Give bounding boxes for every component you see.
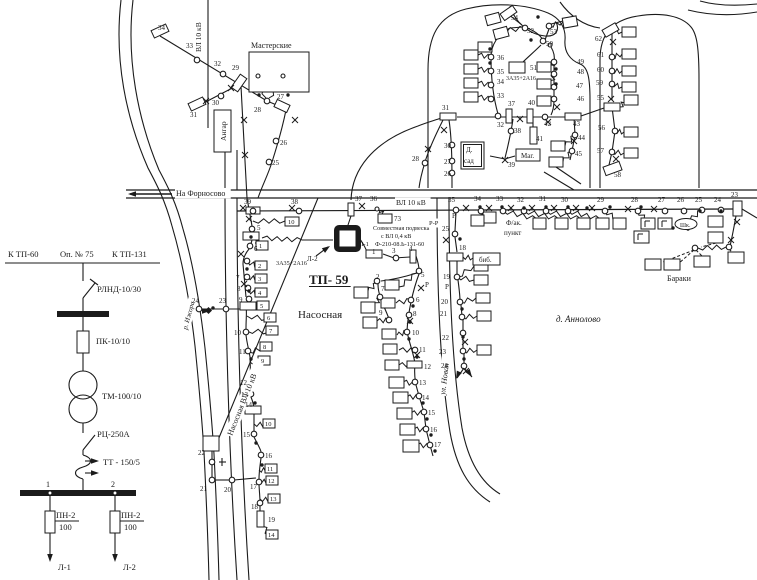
pole-marker [551, 59, 557, 65]
diagram-line [237, 209, 733, 211]
pole-marker [218, 93, 224, 99]
house [664, 259, 680, 270]
diagram-line [241, 86, 247, 198]
diagram-label: 14 [422, 394, 430, 402]
diagram-label: 20 [224, 486, 232, 494]
diagram-line [258, 110, 286, 198]
diagram-label: 10 [412, 329, 420, 337]
pole-marker [264, 98, 270, 104]
diagram-label: 18 [459, 244, 467, 252]
house [622, 66, 636, 76]
house [493, 26, 509, 39]
pole-marker [488, 96, 494, 102]
service-dot [566, 205, 569, 208]
pole-marker [540, 38, 546, 44]
pole-marker [488, 82, 494, 88]
diagram-label: биб. [479, 256, 492, 264]
diagram-label: 34 [158, 24, 166, 32]
house [378, 214, 392, 223]
diagram-label: 50 [546, 40, 554, 48]
diagram-label: с ВЛ 0,4 кВ [381, 233, 411, 240]
diagram-line [688, 10, 757, 15]
house [533, 218, 546, 229]
pole-marker [209, 477, 215, 483]
label-group: Ангар [219, 121, 228, 141]
diagram-label: 1 [46, 480, 50, 489]
diagram-line [259, 458, 261, 479]
diagram-label: 24 [714, 196, 722, 204]
diagram-label: 35 [448, 196, 456, 204]
pole-marker [488, 68, 494, 74]
diagram-label: 3А35+2А16 [276, 260, 307, 267]
diagram-label: 35 [497, 68, 505, 76]
pole-marker [565, 208, 571, 214]
pole-marker [457, 299, 463, 305]
diagram-label: 36 [370, 195, 378, 203]
diagram-label: 28 [631, 196, 639, 204]
diagram-label: 29 [597, 196, 605, 204]
pole-marker [113, 491, 117, 495]
diagram-label: Маг. [521, 152, 534, 160]
pole-marker [256, 479, 262, 485]
house [537, 79, 551, 89]
pole-marker [692, 245, 698, 251]
house [622, 49, 636, 59]
house [476, 293, 490, 303]
diagram-label: 27 [444, 158, 452, 166]
pole-marker [375, 207, 379, 211]
diagram-label: 43 [573, 120, 581, 128]
pole-marker [393, 255, 399, 261]
diagram-label: Р-Р [429, 220, 439, 227]
pole-marker [609, 54, 615, 60]
diagram-label: 26 [444, 170, 452, 178]
service-dot [460, 307, 463, 310]
diagram-label: 16 [265, 452, 273, 460]
diagram-label: 49 [577, 58, 585, 66]
pole-marker [244, 258, 250, 264]
diagram-label: ТТ - 150/5 [103, 457, 140, 467]
house [382, 329, 396, 339]
service-drop-line [253, 219, 285, 223]
house [400, 424, 415, 435]
diagram-label: 2 [111, 480, 115, 489]
diagram-label: 24 [192, 297, 200, 305]
house [708, 216, 723, 227]
diagram-label: Шк. [680, 223, 691, 229]
house [348, 203, 354, 216]
diagram-line [458, 280, 460, 301]
pole-marker [266, 159, 272, 165]
pole-marker [229, 477, 235, 483]
diagram-label: 25 [272, 159, 280, 167]
diagram-label: ТМ-100/10 [102, 391, 141, 401]
pole-marker [542, 114, 548, 120]
service-drop-line [698, 245, 726, 250]
diagram-line [83, 435, 95, 450]
diagram-label: ПН-2 [121, 510, 140, 520]
house [389, 377, 404, 388]
house [733, 201, 742, 216]
house [485, 12, 501, 25]
pole-marker [681, 208, 687, 214]
diagram-label: Ф-210-08.Ь-131-60 [375, 241, 424, 248]
house [604, 103, 620, 111]
service-dot [247, 289, 250, 292]
arrow-head [128, 191, 136, 197]
arrow-head [47, 554, 53, 562]
diagram-line [449, 198, 500, 494]
service-dot [719, 209, 722, 212]
diagram-label: 61 [597, 51, 605, 59]
diagram-line [348, 216, 351, 225]
house [361, 302, 375, 313]
diagram-label: 9 [379, 309, 383, 317]
diagram-label: 13 [270, 496, 277, 503]
diagram-line [83, 283, 95, 298]
pole-marker [460, 348, 466, 354]
diagram-label: 19 [443, 273, 451, 281]
house [203, 436, 219, 451]
diagram-label: 31 [539, 195, 547, 203]
house [474, 275, 488, 285]
house [464, 92, 478, 102]
diagram-label: 33 [497, 92, 505, 100]
service-dot [253, 401, 256, 404]
diagram-label: сад [464, 157, 474, 165]
diagram-label: 14 [268, 532, 275, 539]
diagram-label: 73 [394, 215, 402, 223]
house [596, 218, 609, 229]
house [527, 109, 533, 123]
diagram-label: Р [425, 281, 429, 289]
pole-marker [422, 160, 428, 166]
house [447, 253, 463, 261]
pole-marker [543, 208, 549, 214]
service-dot [529, 38, 532, 41]
diagram-label: 100 [124, 522, 137, 532]
diagram-label: 23 [219, 297, 227, 305]
service-dot [286, 93, 289, 96]
pole-marker [256, 74, 260, 78]
house [624, 148, 638, 158]
pole-marker [404, 329, 410, 335]
service-dot [407, 337, 410, 340]
house [381, 298, 395, 308]
house [551, 141, 565, 151]
diagram-label: 34 [474, 195, 482, 203]
arrow-head [112, 554, 118, 562]
house [537, 96, 551, 106]
diagram-label: 56 [598, 124, 606, 132]
pole-marker [609, 149, 615, 155]
diagram-label: Ангар [219, 121, 228, 141]
diagram-label: 3 [258, 276, 261, 283]
diagram-label: Оп. № 75 [60, 249, 94, 259]
diagram-label: 13 [419, 379, 427, 387]
service-dot [478, 205, 481, 208]
service-dot [254, 441, 257, 444]
label-group: ул. Новая [437, 353, 453, 396]
diagram-label: 3А35+2А16 [506, 76, 536, 82]
diagram-label: 5 [421, 271, 425, 279]
diagram-label: 58 [614, 171, 622, 179]
pole-marker [48, 491, 52, 495]
diagram-label: 40 [528, 99, 536, 107]
pole-marker [406, 312, 412, 318]
diagram-label: 41 [536, 135, 544, 143]
diagram-label: 48 [577, 68, 585, 76]
diagram-label: Совместная подвеска [373, 225, 430, 232]
service-dot [245, 267, 248, 270]
house [728, 252, 744, 263]
diagram-label: 32 [214, 60, 222, 68]
service-dot [671, 226, 674, 229]
house [354, 287, 368, 298]
diagram-label: 2 [376, 273, 380, 281]
diagram-line [523, 45, 541, 62]
pole-marker [250, 208, 256, 214]
house [393, 392, 408, 403]
service-dot [249, 235, 252, 238]
pole-marker [416, 393, 422, 399]
house [464, 50, 478, 60]
house [622, 27, 636, 37]
pole-marker [551, 96, 557, 102]
house [622, 82, 636, 92]
diagram-label: 14 [245, 401, 253, 409]
diagram-label: 33 [186, 42, 194, 50]
diagram-label: 8 [237, 285, 241, 293]
service-dot [608, 205, 611, 208]
diagram-label: 27 [658, 196, 666, 204]
service-dot [260, 463, 263, 466]
house [77, 331, 89, 353]
house [624, 95, 638, 105]
diagram-label: 2 [258, 263, 261, 270]
diagram-label: 1 [372, 248, 376, 256]
house [562, 16, 578, 28]
diagram-label: 37 [508, 100, 516, 108]
diagram-label: 11 [419, 346, 426, 354]
diagram-label: 8 [263, 344, 266, 351]
diagram-label: 17 [250, 483, 258, 491]
diagram-label: 13 [241, 391, 249, 399]
diagram-label: 47 [576, 82, 584, 90]
diagram-label: 9 [239, 296, 243, 304]
diagram-label: 17 [434, 441, 442, 449]
diagram-line [545, 29, 549, 40]
diagram-label: 45 [575, 150, 583, 158]
pole-marker [249, 226, 255, 232]
diagram-label: 8 [413, 310, 417, 318]
house [249, 52, 309, 92]
diagram-label: 28 [412, 155, 420, 163]
diagram-label: 1 [259, 243, 262, 250]
pole-marker [421, 409, 427, 415]
pole-marker [500, 208, 506, 214]
diagram-label: 18 [251, 503, 259, 511]
diagram-label: 22 [198, 449, 206, 457]
house [537, 62, 551, 72]
house [477, 311, 491, 321]
arrow-head [91, 458, 99, 464]
pole-marker [377, 294, 383, 300]
house [440, 113, 456, 120]
house [613, 218, 626, 229]
pole-marker [209, 459, 215, 465]
pole-marker [408, 297, 414, 303]
diagram-label: 23 [731, 191, 739, 199]
diagram-label: 44 [578, 134, 586, 142]
diagram-label: д. Аннолово [556, 314, 601, 324]
diagram-label: 15 [428, 409, 436, 417]
house [645, 259, 661, 270]
diagram-label: ТП- 59 [309, 272, 349, 287]
diagram-label: Д. [466, 146, 473, 154]
diagram-label: 54 [511, 14, 519, 22]
diagram-label: 32 [497, 121, 505, 129]
house [464, 64, 478, 74]
pole-marker [412, 347, 418, 353]
pole-marker [572, 132, 578, 138]
pole-marker [412, 379, 418, 385]
diagram-label: 31 [442, 104, 450, 112]
pole-marker [454, 274, 460, 280]
pole-marker [551, 71, 557, 77]
pole-marker [247, 243, 253, 249]
diagram-label: 38 [514, 127, 522, 135]
house [407, 361, 422, 368]
pole-marker [257, 500, 263, 506]
diagram-label: 4 [409, 245, 413, 253]
house [634, 231, 649, 243]
diagram-line [742, 209, 757, 218]
pole-marker [273, 138, 279, 144]
diagram-label: 51 [530, 64, 538, 72]
house [624, 127, 638, 137]
pole-marker [662, 208, 668, 214]
diagram-label: 52 [527, 27, 535, 35]
pole-marker [194, 57, 200, 63]
symbol-inner [340, 231, 355, 246]
pole-marker [196, 306, 202, 312]
diagram-label: Насосная [298, 309, 342, 321]
diagram-label: 36 [497, 54, 505, 62]
service-drop-line [368, 283, 377, 291]
diagram-label: 22 [442, 334, 450, 342]
diagram-label: 33 [496, 195, 504, 203]
pole-marker [726, 244, 732, 250]
diagram-label: 46 [577, 95, 585, 103]
diagram-label: 12 [268, 478, 275, 485]
pole-marker [635, 208, 641, 214]
diagram-label: 29 [232, 64, 240, 72]
diagram-line [505, 119, 513, 158]
diagram-label: 62 [595, 35, 603, 43]
service-dot [554, 82, 557, 85]
diagram-label: 38 [291, 198, 299, 206]
house [363, 317, 377, 328]
house [506, 109, 512, 123]
diagram-label: 7 [381, 285, 385, 293]
house [45, 511, 55, 533]
diagram-label: 57 [597, 147, 605, 155]
service-dot [425, 417, 428, 420]
diagram-label: 28 [254, 106, 262, 114]
service-dot [585, 206, 588, 209]
diagram-label: 12 [240, 379, 248, 387]
pole-marker [251, 431, 257, 437]
house [509, 62, 525, 73]
pole-marker [220, 71, 226, 77]
diagram-canvas: ВЛ 10 кВМастерскиеАнгарНа Форносово34333… [0, 0, 757, 580]
pole-marker [461, 363, 467, 369]
pole-marker [495, 113, 501, 119]
diagram-label: 34 [497, 78, 505, 86]
pole-marker [258, 452, 264, 458]
service-dot [554, 67, 557, 70]
service-dot [458, 237, 461, 240]
pole-marker [243, 329, 249, 335]
diagram-label: Л-1 [359, 241, 369, 248]
diagram-label: На Форносово [176, 189, 225, 198]
diagram-line [700, 1, 757, 5]
pole-marker [569, 148, 575, 154]
pole-marker [386, 317, 392, 323]
pole-marker [427, 442, 433, 448]
diagram-label: 10 [265, 421, 272, 428]
diagram-label: 19 [268, 516, 276, 524]
arrow-head [322, 244, 332, 253]
house [694, 256, 710, 267]
house [555, 218, 568, 229]
diagram-label: 30 [212, 99, 220, 107]
diagram-label: 20 [441, 298, 449, 306]
filled-symbol [57, 311, 109, 317]
diagram-label: 100 [59, 522, 72, 532]
house [549, 157, 563, 167]
diagram-label: К ТП-60 [8, 249, 38, 259]
diagram-label: 39 [244, 198, 252, 206]
diagram-line [544, 172, 574, 190]
house [274, 99, 290, 112]
diagram-label: 24 [441, 362, 449, 370]
label-group: ВЛ 10 кВ [194, 22, 203, 52]
diagram-label: 10 [288, 219, 295, 226]
pole-marker [223, 306, 229, 312]
pole-marker [612, 128, 618, 134]
service-dot [461, 335, 464, 338]
diagram-label: 42 [544, 120, 552, 128]
house [565, 113, 581, 120]
pole-marker [609, 68, 615, 74]
diagram-label: 5 [260, 303, 263, 310]
diagram-line [609, 107, 615, 165]
diagram-label: ПК-10/10 [96, 336, 130, 346]
pole-marker [244, 274, 250, 280]
house [464, 78, 478, 88]
diagram-label: 60 [597, 66, 605, 74]
pole-marker [459, 314, 465, 320]
service-dot [488, 47, 491, 50]
diagram-line [259, 485, 260, 500]
house [110, 511, 120, 533]
diagram-label: К ТП-131 [112, 249, 147, 259]
house [231, 74, 247, 92]
pole-marker [478, 208, 484, 214]
service-dot [257, 93, 260, 96]
